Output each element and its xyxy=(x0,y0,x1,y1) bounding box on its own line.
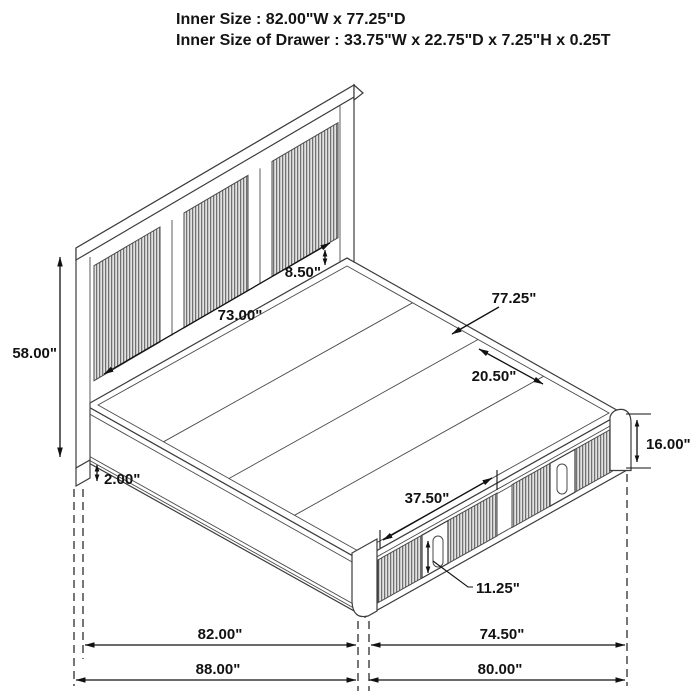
dim-footboard-span: 74.50" xyxy=(371,626,625,645)
dim-headboard-inner-width-label: 73.00" xyxy=(218,307,263,324)
dim-headboard-rail-height-label: 8.50" xyxy=(285,264,321,281)
dim-headboard-height: 58.00" xyxy=(12,257,60,457)
dim-leg-height-label: 2.00" xyxy=(104,471,140,488)
drawer-handle-2 xyxy=(557,464,567,494)
header: Inner Size : 82.00"W x 77.25"D Inner Siz… xyxy=(176,11,611,49)
corner-post-front xyxy=(352,539,377,617)
header-inner-size: Inner Size : 82.00"W x 77.25"D xyxy=(176,11,406,28)
bed-dimension-diagram-page: 58.00" 73.00" 8.50" 77.25" 20.50" 16.00"… xyxy=(0,0,700,700)
dim-footboard-height: 16.00" xyxy=(626,414,691,468)
dim-side-rail-span-label: 82.00" xyxy=(198,626,243,643)
corner-post-right xyxy=(610,409,631,470)
headboard-cap-end xyxy=(354,85,363,100)
dim-side-rail-span: 82.00" xyxy=(85,626,356,645)
dim-platform-inner-depth: 77.25" xyxy=(452,290,536,334)
dim-overall-depth: 88.00" xyxy=(76,661,356,680)
dim-overall-depth-label: 88.00" xyxy=(196,661,241,678)
dim-footboard-span-label: 74.50" xyxy=(480,626,525,643)
dim-platform-inner-depth-label: 77.25" xyxy=(492,290,537,307)
dim-drawer-handle-height-label: 11.25" xyxy=(476,580,520,597)
dim-slat-section-depth-label: 20.50" xyxy=(472,368,517,385)
dim-overall-width-label: 80.00" xyxy=(478,661,523,678)
dim-footboard-height-label: 16.00" xyxy=(646,436,691,453)
bed-dimension-diagram: 58.00" 73.00" 8.50" 77.25" 20.50" 16.00"… xyxy=(0,0,700,700)
dim-headboard-height-label: 58.00" xyxy=(12,345,57,362)
header-drawer-size: Inner Size of Drawer : 33.75"W x 22.75"D… xyxy=(176,32,611,49)
dim-drawer-front-width-label: 37.50" xyxy=(405,490,450,507)
dim-overall-width: 80.00" xyxy=(369,661,625,680)
